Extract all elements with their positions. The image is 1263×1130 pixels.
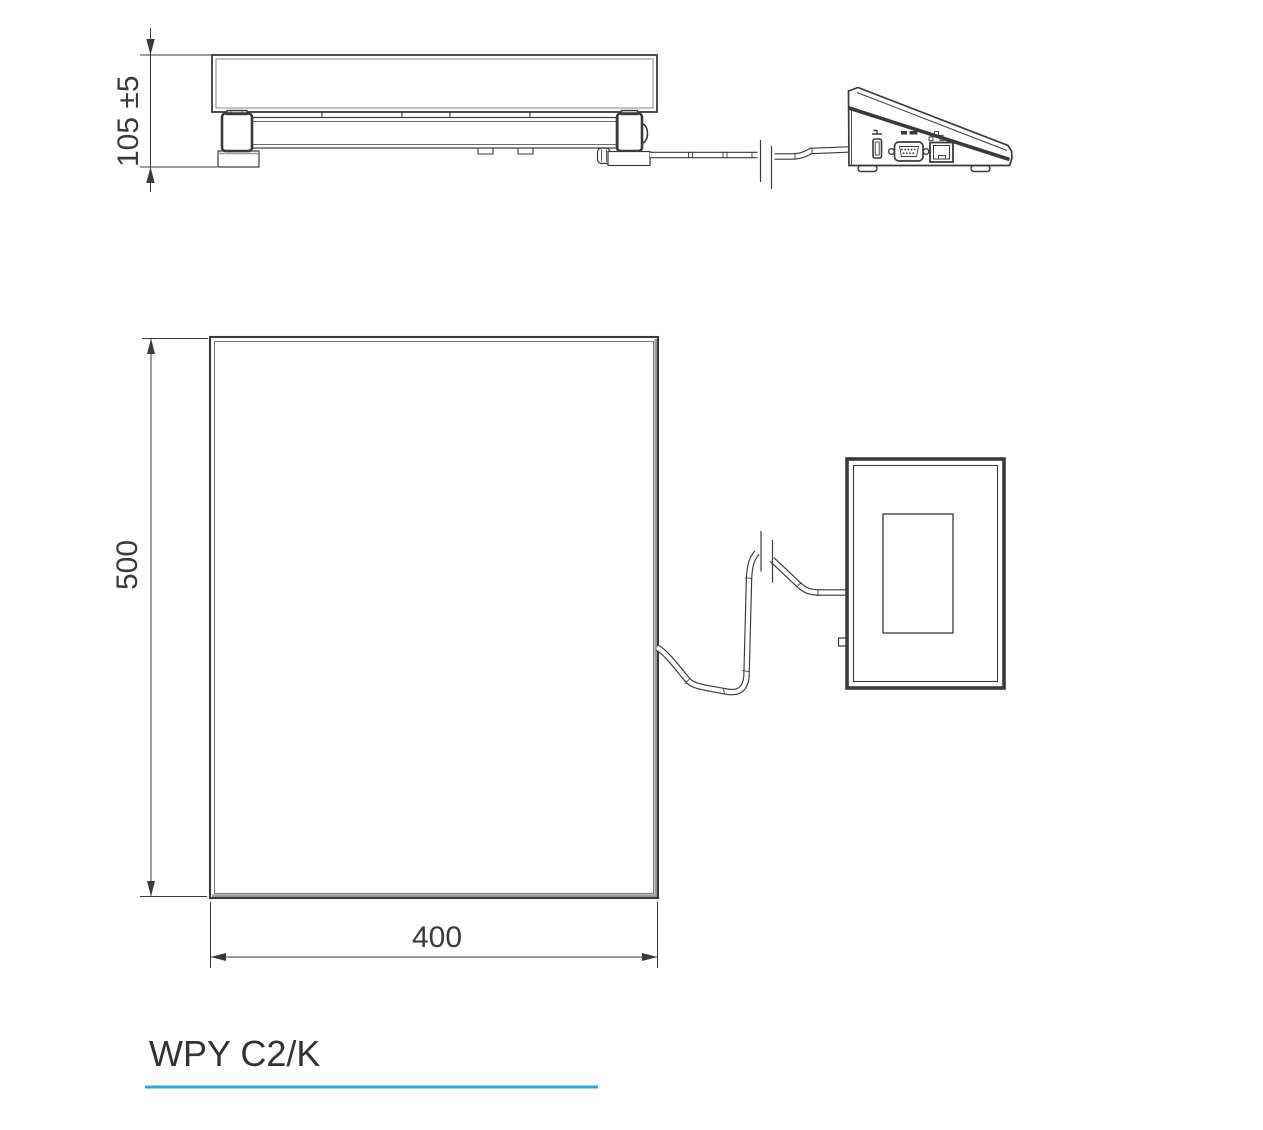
dimension-depth-label: 500 <box>111 540 144 590</box>
platform-top-view <box>210 337 658 898</box>
cable-top-view <box>657 531 847 694</box>
arrowhead-right <box>642 953 658 961</box>
model-title: WPY C2/K <box>149 1033 320 1074</box>
arrowhead-bottom <box>147 881 155 897</box>
usb-port <box>872 130 882 158</box>
technical-drawing-page: 105 ±5 <box>0 0 1263 1130</box>
foot-right <box>608 152 650 166</box>
terminal-display <box>883 514 953 633</box>
side-elevation-view: 105 ±5 <box>112 28 1012 192</box>
dimension-width-label: 400 <box>412 921 462 954</box>
top-plan-view: 500 400 <box>111 337 1004 968</box>
foot-left <box>218 151 259 167</box>
arrowhead-top <box>147 339 155 355</box>
cable-break-symbol-top <box>761 531 773 583</box>
weighing-pan-side <box>212 55 657 118</box>
footer: WPY C2/K <box>145 1033 598 1089</box>
terminal-foot-left <box>858 166 877 172</box>
arrowhead-bottom <box>146 167 154 183</box>
dimension-depth: 500 <box>111 339 208 897</box>
terminal-top-view <box>839 459 1005 688</box>
dimension-width: 400 <box>211 902 658 968</box>
arrowhead-top <box>146 39 154 55</box>
terminal-side-view <box>849 88 1013 172</box>
terminal-foot-right <box>971 166 990 172</box>
load-cell-right <box>617 111 648 152</box>
dimension-height: 105 ±5 <box>112 28 217 192</box>
dimension-height-label: 105 ±5 <box>112 75 145 167</box>
accent-underline <box>145 1086 598 1089</box>
cable-break-symbol-side <box>761 140 772 189</box>
support-frame-side <box>252 118 618 155</box>
db9-serial-port <box>889 131 929 161</box>
arrowhead-left <box>211 953 227 961</box>
cable-side <box>650 140 848 189</box>
load-cell-left <box>222 111 252 152</box>
